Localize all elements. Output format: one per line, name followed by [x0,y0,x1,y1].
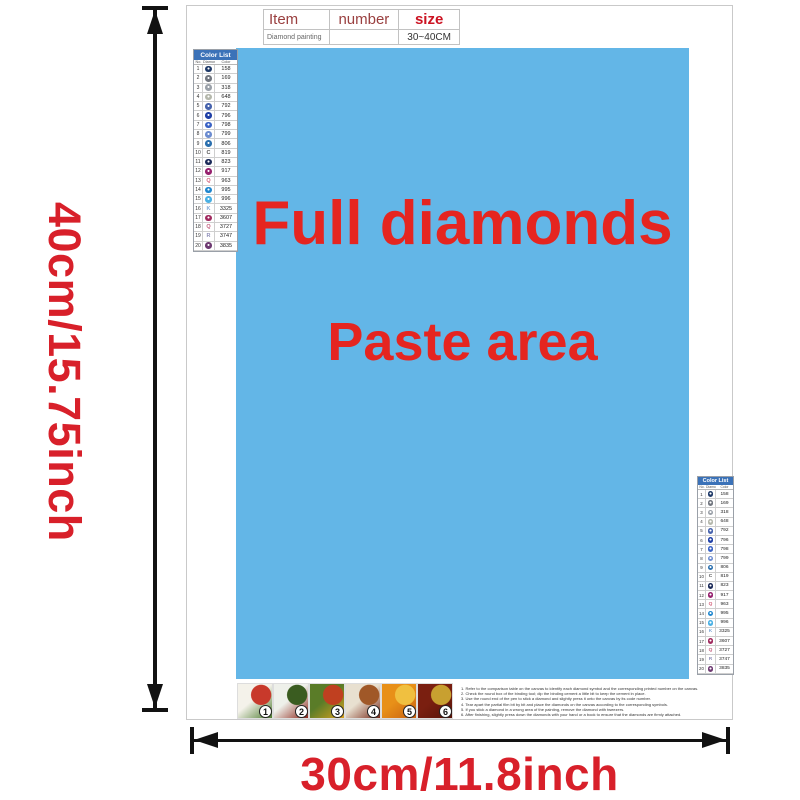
dmc-color-code: 648 [716,519,733,524]
diamond-color-dot-icon [708,519,714,525]
color-row-number: 6 [698,536,706,544]
arrow-shaft [153,10,157,708]
step-image: 4 [345,683,381,719]
diamond-color-dot-icon [708,666,714,672]
diamond-color-dot-icon [205,215,212,222]
step-image: 1 [237,683,273,719]
color-list-row: 15996 [698,619,733,628]
color-row-number: 2 [194,74,203,82]
diamond-symbol-cell: R [203,232,215,240]
color-list-title: Color List [698,477,733,485]
step-number-badge: 6 [439,705,452,718]
color-list-row: 2169 [194,74,237,83]
diamond-symbol-cell [706,591,716,599]
color-list-row: 203835 [698,665,733,674]
color-list-row: 6796 [698,536,733,545]
color-list-row: 4648 [698,518,733,527]
dmc-color-code: 3747 [215,233,237,239]
color-row-number: 20 [194,242,203,250]
diamond-symbol-cell [203,84,215,92]
color-list-row: 18Q3727 [698,646,733,655]
color-row-number: 7 [194,121,203,129]
dmc-color-code: 318 [215,85,237,91]
dmc-color-code: 963 [215,178,237,184]
dmc-color-code: 996 [716,620,733,625]
dmc-color-code: 3835 [215,243,237,249]
diamond-color-dot-icon [205,94,212,101]
color-row-number: 12 [194,167,203,175]
diamond-symbol-cell [706,564,716,572]
product-dimension-diagram: 40cm/15.75inch Item number size Diamond … [0,0,800,800]
diamond-symbol-cell [706,582,716,590]
color-list-row: 173607 [194,214,237,223]
diamond-color-dot-icon [708,592,714,598]
diamond-symbol-cell [203,158,215,166]
color-row-number: 5 [194,102,203,110]
dmc-color-code: 3607 [716,639,733,644]
diamond-symbol-cell [203,102,215,110]
color-list-row: 10C819 [194,149,237,158]
dmc-color-code: 158 [215,66,237,72]
dmc-color-code: 798 [716,547,733,552]
diamond-symbol-cell [706,527,716,535]
step-image: 3 [309,683,345,719]
dmc-color-code: 798 [215,122,237,128]
diamond-color-dot-icon [205,84,212,91]
color-list-row: 13Q963 [194,177,237,186]
size-header-cell: size [399,10,460,30]
item-table-header-row: Item number size [264,10,460,30]
number-value-cell [329,30,399,45]
color-list-row: 16K3325 [698,628,733,637]
instructions: 1. Refer to the comparison table on the … [461,686,727,717]
color-list-right: Color List No. Diamond Color 11582169331… [697,476,734,675]
color-list-row: 203835 [194,242,237,251]
color-row-number: 1 [698,490,706,498]
step-number-badge: 1 [259,705,272,718]
diamond-symbol-cell: K [706,628,716,636]
diamond-symbol-cell: Q [203,177,215,185]
dmc-color-code: 318 [716,510,733,515]
diamond-color-dot-icon [205,140,212,147]
color-list-row: 16K3325 [194,204,237,213]
color-list-row: 11823 [698,582,733,591]
diamond-color-dot-icon [708,537,714,543]
diamond-color-dot-icon [205,66,212,73]
diamond-color-dot-icon [205,131,212,138]
color-list-row: 19R3747 [194,232,237,241]
dmc-color-code: 796 [716,538,733,543]
color-list-row: 8799 [698,554,733,563]
color-list-row: 4648 [194,93,237,102]
diamond-color-dot-icon [205,112,212,119]
dmc-color-code: 792 [716,528,733,533]
diamond-symbol-cell [706,508,716,516]
color-row-number: 14 [698,609,706,617]
color-row-number: 7 [698,545,706,553]
color-list-row: 15996 [194,195,237,204]
dmc-color-code: 799 [215,131,237,137]
dmc-color-code: 3727 [215,224,237,230]
arrow-down-icon [147,684,163,708]
color-list-row: 12917 [194,167,237,176]
color-row-number: 9 [698,564,706,572]
color-row-number: 19 [698,655,706,663]
step-number-badge: 3 [331,705,344,718]
vertical-dimension-arrow [142,6,168,712]
diamond-symbol-cell [203,195,215,203]
diamond-symbol-cell [706,490,716,498]
color-list-row: 173607 [698,637,733,646]
dmc-color-code: 823 [215,159,237,165]
color-row-number: 17 [698,637,706,645]
color-row-number: 3 [194,84,203,92]
step-image: 5 [381,683,417,719]
item-info-table: Item number size Diamond painting 30~40C… [263,9,460,45]
diamond-color-dot-icon [205,242,212,249]
diamond-symbol-cell [203,186,215,194]
width-dimension-label: 30cm/11.8inch [186,747,733,800]
dmc-color-code: 823 [716,583,733,588]
paste-area-title: Full diamonds [252,188,672,259]
diamond-color-dot-icon [708,611,714,617]
color-row-number: 15 [698,619,706,627]
dmc-color-code: 806 [215,141,237,147]
diamond-symbol-cell [706,499,716,507]
step-number-badge: 4 [367,705,380,718]
item-table-data-row: Diamond painting 30~40CM [264,30,460,45]
canvas-sheet: Item number size Diamond painting 30~40C… [186,5,733,720]
col-no: No. [698,485,706,489]
color-row-number: 16 [698,628,706,636]
color-row-number: 2 [698,499,706,507]
diamond-color-dot-icon [708,565,714,571]
diamond-color-dot-icon [708,546,714,552]
color-list-row: 5792 [698,527,733,536]
dmc-color-code: 995 [716,611,733,616]
diamond-symbol-cell [203,214,215,222]
dmc-color-code: 3747 [716,657,733,662]
diamond-symbol-cell: Q [706,646,716,654]
diamond-symbol-cell [203,74,215,82]
diamond-symbol-cell: C [706,573,716,581]
color-list-row: 1158 [194,65,237,74]
diamond-symbol-cell [706,518,716,526]
diamond-color-dot-icon [708,638,714,644]
color-list-row: 6796 [194,111,237,120]
size-value-cell: 30~40CM [399,30,460,45]
color-row-number: 6 [194,111,203,119]
dmc-color-code: 648 [215,94,237,100]
color-list-row: 9806 [194,139,237,148]
diamond-symbol-cell [706,545,716,553]
color-list-row: 19R3747 [698,655,733,664]
color-row-number: 10 [698,573,706,581]
instruction-line: 6. After finishing, slightly press down … [461,712,727,717]
color-list-row: 14995 [194,186,237,195]
color-row-number: 14 [194,186,203,194]
diamond-symbol-cell: Q [706,600,716,608]
color-list-row: 1158 [698,490,733,499]
diamond-color-dot-icon [205,187,212,194]
color-row-number: 12 [698,591,706,599]
dmc-color-code: 963 [716,602,733,607]
diamond-symbol-cell [203,139,215,147]
dmc-color-code: 158 [716,492,733,497]
dmc-color-code: 917 [215,168,237,174]
diamond-symbol-cell [203,121,215,129]
step-number-badge: 2 [295,705,308,718]
dmc-color-code: 796 [215,113,237,119]
color-row-number: 9 [194,139,203,147]
color-list-row: 12917 [698,591,733,600]
color-row-number: 3 [698,508,706,516]
paste-area-subtitle: Paste area [327,311,597,373]
dmc-color-code: 806 [716,565,733,570]
dmc-color-code: 819 [215,150,237,156]
color-list-row: 9806 [698,564,733,573]
color-list-row: 10C819 [698,573,733,582]
diamond-color-dot-icon [205,159,212,166]
color-row-number: 5 [698,527,706,535]
dmc-color-code: 819 [716,574,733,579]
col-color: Color [716,485,733,489]
color-list-left: Color List No. Diamond Color 11582169331… [193,49,238,252]
color-row-number: 19 [194,232,203,240]
arrow-right-icon [702,732,726,748]
color-list-row: 7798 [698,545,733,554]
diamond-color-dot-icon [708,620,714,626]
diamond-symbol-cell [203,65,215,73]
diamond-symbol-cell [706,609,716,617]
step-image: 6 [417,683,453,719]
dmc-color-code: 917 [716,593,733,598]
dmc-color-code: 3325 [716,629,733,634]
color-list-row: 3318 [698,508,733,517]
diamond-symbol-cell [203,167,215,175]
color-row-number: 13 [698,600,706,608]
color-list-body: 11582169331846485792679677988799980610C8… [194,65,237,251]
color-row-number: 18 [194,223,203,231]
color-row-number: 18 [698,646,706,654]
color-list-row: 2169 [698,499,733,508]
dmc-color-code: 792 [215,103,237,109]
color-row-number: 8 [194,130,203,138]
color-row-number: 4 [194,93,203,101]
color-list-row: 3318 [194,84,237,93]
diamond-color-dot-icon [708,510,714,516]
diamond-color-dot-icon [205,168,212,175]
color-list-row: 18Q3727 [194,223,237,232]
diamond-color-dot-icon [708,583,714,589]
diamond-symbol-cell [706,665,716,673]
color-row-number: 16 [194,204,203,212]
dmc-color-code: 996 [215,196,237,202]
color-row-number: 15 [194,195,203,203]
color-list-row: 11823 [194,158,237,167]
diamond-symbol-cell [706,619,716,627]
diamond-color-dot-icon [205,103,212,110]
diamond-color-dot-icon [708,491,714,497]
dmc-color-code: 3607 [215,215,237,221]
diamond-symbol-cell: K [203,204,215,212]
dmc-color-code: 3835 [716,666,733,671]
diamond-color-dot-icon [708,500,714,506]
col-diamond: Diamond [706,485,716,489]
diamond-color-dot-icon [205,196,212,203]
color-row-number: 4 [698,518,706,526]
diamond-symbol-cell: C [203,149,215,157]
color-row-number: 11 [194,158,203,166]
color-list-body: 11582169331846485792679677988799980610C8… [698,490,733,674]
arrow-shaft [194,739,726,743]
color-list-row: 5792 [194,102,237,111]
color-row-number: 10 [194,149,203,157]
color-row-number: 13 [194,177,203,185]
steps-strip: 123456 [237,683,453,719]
color-row-number: 1 [194,65,203,73]
diamond-symbol-cell [203,242,215,250]
color-row-number: 17 [194,214,203,222]
diamond-color-dot-icon [205,75,212,82]
color-list-row: 7798 [194,121,237,130]
diamond-color-dot-icon [205,122,212,129]
color-row-number: 8 [698,554,706,562]
color-list-row: 8799 [194,130,237,139]
height-dimension-label: 40cm/15.75inch [38,202,90,552]
color-row-number: 11 [698,582,706,590]
item-header-cell: Item [264,10,330,30]
paste-area: Full diamonds Paste area [236,48,689,679]
dmc-color-code: 3727 [716,648,733,653]
color-list-row: 14995 [698,609,733,618]
number-header-cell: number [329,10,399,30]
diamond-symbol-cell [203,111,215,119]
diamond-symbol-cell [706,536,716,544]
step-image: 2 [273,683,309,719]
product-name-cell: Diamond painting [264,30,330,45]
diamond-symbol-cell: Q [203,223,215,231]
col-diamond: Diamond [203,60,215,64]
dmc-color-code: 3325 [215,206,237,212]
dmc-color-code: 169 [716,501,733,506]
arrow-end-cap [142,708,168,712]
col-color: Color [215,60,237,64]
col-no: No. [194,60,203,64]
color-row-number: 20 [698,665,706,673]
diamond-symbol-cell [203,93,215,101]
diamond-color-dot-icon [708,556,714,562]
diamond-symbol-cell: R [706,655,716,663]
diamond-symbol-cell [203,130,215,138]
step-number-badge: 5 [403,705,416,718]
diamond-symbol-cell [706,637,716,645]
dmc-color-code: 169 [215,75,237,81]
diamond-color-dot-icon [708,528,714,534]
color-list-row: 13Q963 [698,600,733,609]
diamond-symbol-cell [706,554,716,562]
dmc-color-code: 995 [215,187,237,193]
dmc-color-code: 799 [716,556,733,561]
color-list-title: Color List [194,50,237,60]
